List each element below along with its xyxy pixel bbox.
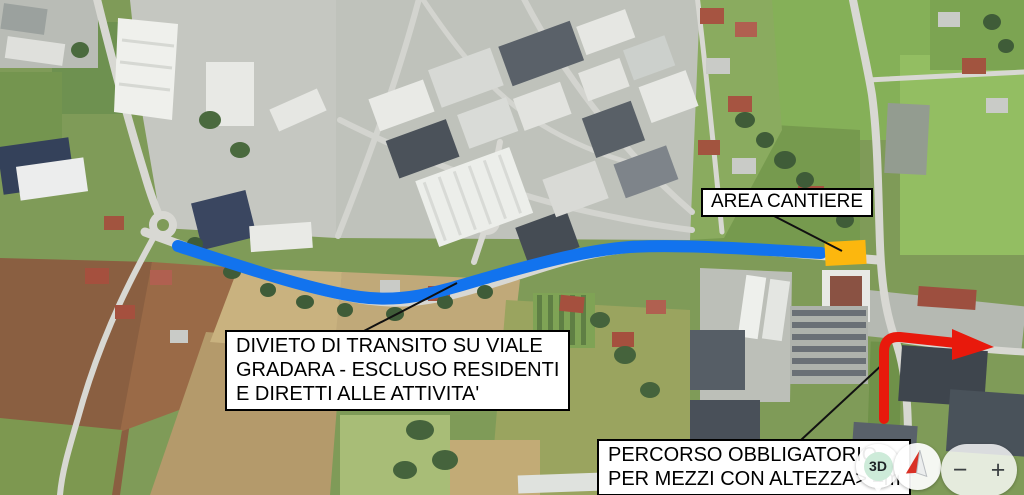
map-viewport: AREA CANTIERE DIVIETO DI TRANSITO SU VIA… bbox=[0, 0, 1024, 495]
area-cantiere-label: AREA CANTIERE bbox=[701, 188, 873, 217]
route-highlight-blue bbox=[178, 246, 821, 299]
divieto-line-1: DIVIETO DI TRANSITO SU VIALE bbox=[236, 334, 559, 358]
divieto-transito-label: DIVIETO DI TRANSITO SU VIALE GRADARA - E… bbox=[225, 330, 570, 411]
leader-line-divieto bbox=[362, 283, 457, 332]
mandatory-route-arrow bbox=[884, 337, 956, 419]
mandatory-route-arrowhead bbox=[952, 329, 994, 360]
zoom-in-button[interactable]: + bbox=[979, 445, 1017, 495]
divieto-line-3: E DIRETTI ALLE ATTIVITA' bbox=[236, 382, 559, 406]
leader-line-percorso bbox=[801, 363, 884, 440]
3d-button-face: 3D bbox=[864, 452, 893, 481]
construction-area-marker bbox=[824, 240, 866, 266]
zoom-control: − + bbox=[941, 444, 1017, 495]
compass-button[interactable] bbox=[894, 443, 941, 490]
divieto-line-2: GRADARA - ESCLUSO RESIDENTI bbox=[236, 358, 559, 382]
compass-needle-icon bbox=[894, 443, 941, 490]
zoom-out-button[interactable]: − bbox=[941, 445, 979, 495]
annotation-overlay bbox=[0, 0, 1024, 495]
